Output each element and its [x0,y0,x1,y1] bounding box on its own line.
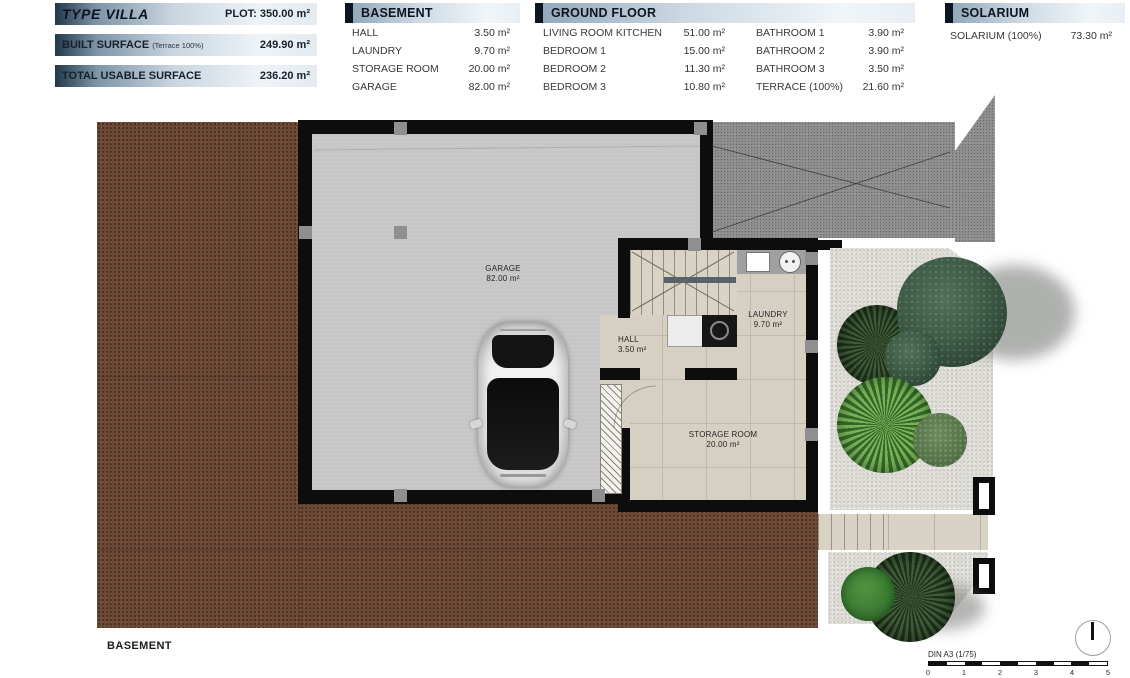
garden-steps [818,512,888,552]
row-label: SOLARIUM (100%) [950,30,1042,42]
basin-dot [785,260,788,263]
scale-bar [928,661,1108,666]
table-row: SOLARIUM (100%)73.30 m² [950,30,1112,42]
row-label: BATHROOM 1 [756,27,825,39]
row-label: HALL [352,27,378,39]
hatched-shaft [600,384,622,494]
table-row: BATHROOM 13.90 m² [756,27,904,39]
built-surface-bar: BUILT SURFACE(Terrace 100%) 249.90 m² [55,34,317,56]
garage-label: GARAGE 82.00 m² [458,264,548,283]
storage-room-label: STORAGE ROOM 20.00 m² [668,430,778,449]
column [694,122,707,135]
table-row: BEDROOM 211.30 m² [543,63,725,75]
floor-title: BASEMENT [107,640,172,652]
wall-block-top [618,238,818,250]
column [394,122,407,135]
table-row: LAUNDRY9.70 m² [352,45,510,57]
row-label: LIVING ROOM KITCHEN [543,27,662,39]
row-label: BEDROOM 3 [543,81,606,93]
column [394,489,407,502]
table-row: BEDROOM 115.00 m² [543,45,725,57]
room-area: 3.50 m² [618,345,670,355]
room-area: 9.70 m² [733,320,803,330]
wall-hall-storage-left [600,368,640,380]
scale-tick: 5 [1106,668,1110,677]
scale-tick: 1 [962,668,966,677]
floor-plan-sheet: TYPE VILLA PLOT: 350.00 m² BUILT SURFACE… [0,0,1130,678]
table-row: LIVING ROOM KITCHEN51.00 m² [543,27,725,39]
stair-landing [664,277,736,283]
row-value: 21.60 m² [863,81,904,93]
driveway-ramp [708,122,955,238]
column [394,226,407,239]
row-value: 3.90 m² [868,27,904,39]
sink-icon [746,252,770,272]
bush-icon [841,567,895,621]
total-usable-label: TOTAL USABLE SURFACE [62,70,201,82]
row-value: 20.00 m² [469,63,510,75]
column [299,226,312,239]
row-value: 3.90 m² [868,45,904,57]
scale-ticks: 0 1 2 3 4 5 [928,668,1108,678]
total-usable-value: 236.20 m² [260,70,310,82]
room-name: HALL [618,335,670,345]
row-value: 51.00 m² [684,27,725,39]
row-value: 82.00 m² [469,81,510,93]
built-surface-note: (Terrace 100%) [152,41,203,50]
row-label: GARAGE [352,81,397,93]
table-row: HALL3.50 m² [352,27,510,39]
wall-hall-storage-right [685,368,737,380]
row-label: LAUNDRY [352,45,402,57]
car-rear-window [492,335,554,368]
table-row: BEDROOM 310.80 m² [543,81,725,93]
room-area: 20.00 m² [668,440,778,450]
wall-block-left-upper [618,238,630,318]
car-trunk-line [500,329,546,331]
washer-drum [710,321,729,340]
row-value: 3.50 m² [474,27,510,39]
row-value: 10.80 m² [684,81,725,93]
row-value: 15.00 m² [684,45,725,57]
table-row: STORAGE ROOM20.00 m² [352,63,510,75]
wall-block-right [806,238,818,512]
terrain-left [97,122,300,628]
garden-pillar [973,558,995,594]
terrain-bottom [300,502,818,628]
basement-table-header: BASEMENT [345,3,520,23]
row-value: 73.30 m² [1071,30,1112,42]
hall-label: HALL 3.50 m² [618,335,670,354]
room-area: 82.00 m² [458,274,548,284]
scale-tick: 4 [1070,668,1074,677]
row-label: TERRACE (100%) [756,81,843,93]
room-name: GARAGE [458,264,548,274]
column [688,238,701,251]
bush-icon [913,413,967,467]
wall-block-bottom [618,500,818,512]
row-label: STORAGE ROOM [352,63,439,75]
row-label: BEDROOM 1 [543,45,606,57]
column [592,489,605,502]
car-top-view [478,322,568,487]
solarium-table-header: SOLARIUM [945,3,1125,23]
laundry-label: LAUNDRY 9.70 m² [733,310,803,329]
type-villa-bar: TYPE VILLA PLOT: 350.00 m² [55,3,317,25]
built-surface-value: 249.90 m² [260,39,310,51]
table-row: BATHROOM 23.90 m² [756,45,904,57]
ground-floor-table-header: GROUND FLOOR [535,3,915,23]
type-villa-title: TYPE VILLA [62,6,149,22]
table-row: TERRACE (100%)21.60 m² [756,81,904,93]
room-name: LAUNDRY [733,310,803,320]
wall-garage-top [298,120,713,134]
car-hood-line [500,474,546,477]
built-surface-text: BUILT SURFACE [62,39,149,51]
room-name: STORAGE ROOM [668,430,778,440]
basin-icon [779,251,801,273]
table-row: BATHROOM 33.50 m² [756,63,904,75]
row-label: BATHROOM 3 [756,63,825,75]
row-value: 3.50 m² [868,63,904,75]
driveway-entry [955,95,995,242]
table-row: GARAGE82.00 m² [352,81,510,93]
garden-walkway [888,512,988,552]
garden-pillar [973,477,995,515]
basin-dot [792,260,795,263]
scale-tick: 2 [998,668,1002,677]
north-arrow-icon [1075,620,1111,656]
scale-tick: 3 [1034,668,1038,677]
row-value: 9.70 m² [474,45,510,57]
row-value: 11.30 m² [684,63,725,75]
built-surface-label: BUILT SURFACE(Terrace 100%) [62,39,203,51]
column [805,252,818,265]
row-label: BATHROOM 2 [756,45,825,57]
wall-garage-left [298,120,312,504]
plot-value: PLOT: 350.00 m² [225,8,310,20]
total-usable-bar: TOTAL USABLE SURFACE 236.20 m² [55,65,317,87]
scale-label: DIN A3 (1/75) [928,650,976,659]
column [805,428,818,441]
wall-garage-right [700,120,713,250]
car-roof-glass [487,378,559,470]
column [805,340,818,353]
scale-tick: 0 [926,668,930,677]
row-label: BEDROOM 2 [543,63,606,75]
